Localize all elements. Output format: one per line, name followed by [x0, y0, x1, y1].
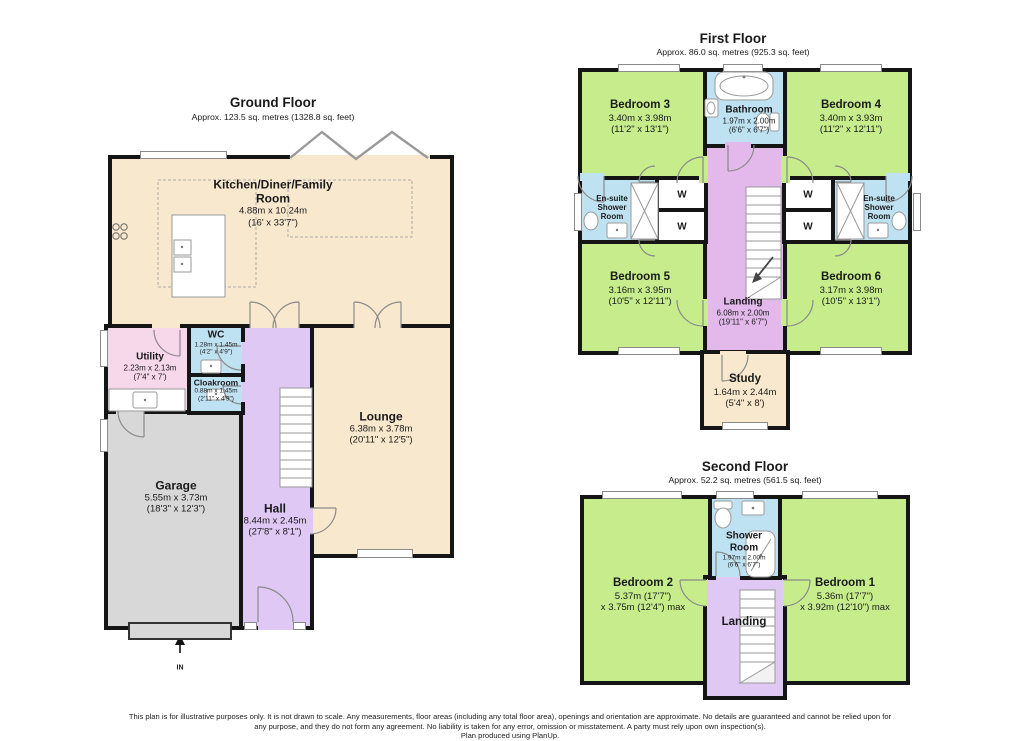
garage-door — [128, 622, 232, 640]
toilet-icon — [201, 360, 221, 373]
hob-icon — [113, 224, 127, 239]
entrance-label: IN — [177, 665, 184, 672]
wardrobe-label: W — [677, 190, 686, 201]
room-label-landing-second: Landing — [722, 616, 767, 630]
room-label-bathroom: Bathroom — [723, 105, 776, 117]
toilet-icon — [714, 501, 732, 528]
room-label-bedroom-6: Bedroom 6 — [820, 271, 883, 285]
shower-icon — [631, 183, 658, 239]
room-label-bedroom-2: Bedroom 2 — [601, 577, 685, 591]
sink-icon — [868, 223, 888, 238]
room-label-hall: Hall — [244, 502, 307, 516]
sink-icon — [109, 389, 185, 411]
room-label-bedroom-5: Bedroom 5 — [608, 271, 671, 285]
disclaimer-line-2: any purpose, and they do not form any ag… — [254, 722, 766, 731]
room-label-bedroom-1: Bedroom 1 — [800, 577, 890, 591]
sink-icon — [705, 99, 718, 117]
room-label-garage: Garage — [145, 479, 208, 493]
shower-icon — [837, 183, 864, 239]
wardrobe-label: W — [803, 190, 812, 201]
disclaimer-line-1: This plan is for illustrative purposes o… — [129, 712, 891, 721]
bath-icon — [715, 72, 773, 100]
door-arcs — [578, 145, 912, 381]
sink-icon — [742, 501, 764, 515]
ground-floor-plan: Kitchen/Diner/Family Room 4.88m x 10.24m… — [95, 90, 475, 675]
roofline-zigzag — [290, 132, 428, 159]
room-label-wc: WC — [195, 329, 238, 341]
first-floor-plan: Bedroom 3 3.40m x 3.98m (11'2" x 13'1") … — [565, 25, 930, 435]
wardrobe-label: W — [803, 222, 812, 233]
disclaimer-line-3: Plan produced using PlanUp. — [461, 731, 559, 740]
room-label-cloakroom: Cloakroom — [194, 377, 238, 387]
room-label-landing-first: Landing — [717, 297, 770, 309]
stairs — [740, 590, 775, 683]
door-arcs — [118, 302, 401, 622]
room-label-bedroom-4: Bedroom 4 — [820, 99, 883, 113]
floorplan-page: Ground Floor Approx. 123.5 sq. metres (1… — [0, 0, 1020, 741]
stairs — [280, 388, 312, 487]
room-label-bedroom-3: Bedroom 3 — [609, 99, 672, 113]
wardrobe-label: W — [677, 222, 686, 233]
room-label-utility: Utility — [124, 352, 177, 364]
second-floor-plan: Bedroom 2 5.37m (17'7") x 3.75m (12'4") … — [570, 455, 940, 710]
stairs — [746, 187, 781, 299]
sink-icon — [607, 223, 627, 238]
room-label-kitchen: Kitchen/Diner/Family — [213, 178, 332, 192]
room-label-shower-room: Shower — [723, 531, 766, 543]
room-label-study: Study — [714, 373, 777, 387]
room-label-lounge: Lounge — [349, 410, 412, 424]
